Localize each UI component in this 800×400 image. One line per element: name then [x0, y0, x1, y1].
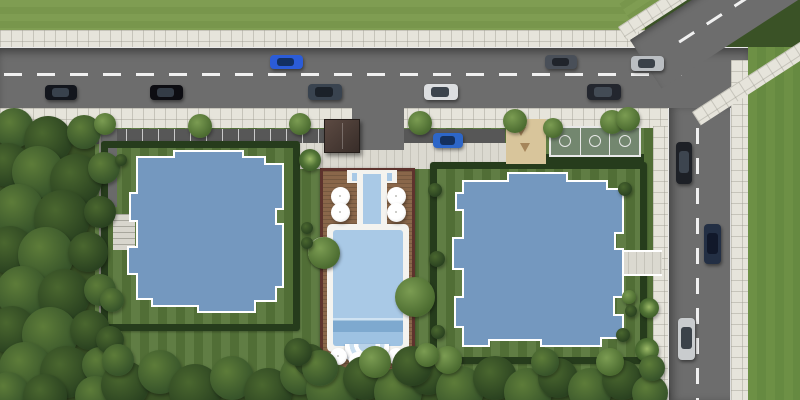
car-windshield — [52, 88, 69, 98]
shrub-70 — [431, 325, 445, 339]
tree-63 — [639, 298, 659, 318]
car-windshield — [431, 87, 449, 97]
car-windshield — [315, 87, 333, 97]
car-horizontal-8 — [433, 133, 463, 148]
car-windshield — [157, 88, 174, 98]
shrub-68 — [428, 183, 442, 197]
tree-57 — [289, 113, 311, 135]
car-windshield — [679, 151, 689, 173]
site-plan-render — [0, 0, 800, 400]
tree-12 — [68, 232, 108, 272]
shrub-71 — [618, 182, 632, 196]
car-horizontal-7 — [631, 56, 664, 71]
shrub-74 — [625, 305, 637, 317]
pool-umbrella-3 — [387, 203, 406, 222]
car-horizontal-0 — [45, 85, 77, 100]
tree-9 — [84, 196, 116, 228]
shrub-69 — [429, 251, 445, 267]
planter-tree-1 — [395, 277, 435, 317]
car-horizontal-4 — [424, 84, 458, 100]
pool-main-water — [333, 230, 403, 346]
car-windshield — [707, 233, 718, 254]
shrub-67 — [301, 237, 313, 249]
shrub-66 — [301, 222, 313, 234]
tree-62 — [616, 107, 640, 131]
car-windshield — [277, 58, 294, 67]
building-left-roof — [128, 151, 283, 312]
pool-umbrella-1 — [331, 203, 350, 222]
car-horizontal-2 — [270, 55, 303, 69]
pool-channel-water — [363, 174, 381, 230]
tree-26 — [100, 288, 124, 312]
car-horizontal-5 — [545, 55, 577, 69]
tree-55 — [94, 113, 116, 135]
car-horizontal-1 — [150, 85, 183, 100]
car-vertical-11 — [678, 318, 695, 360]
car-windshield — [638, 59, 655, 69]
shrub-75 — [115, 154, 127, 166]
building-right-roof — [453, 173, 623, 346]
car-horizontal-3 — [308, 84, 342, 100]
car-windshield — [681, 327, 692, 349]
tree-53 — [299, 149, 321, 171]
tree-52 — [415, 343, 439, 367]
tree-65 — [639, 355, 665, 381]
shrub-72 — [616, 328, 630, 342]
car-windshield — [552, 58, 569, 67]
tree-49 — [596, 348, 624, 376]
tree-54 — [284, 338, 312, 366]
tree-46 — [359, 346, 391, 378]
tree-48 — [531, 348, 559, 376]
car-horizontal-6 — [587, 84, 621, 100]
tree-44 — [102, 344, 134, 376]
tree-58 — [408, 111, 432, 135]
car-windshield — [440, 136, 456, 146]
tree-61 — [543, 118, 563, 138]
car-vertical-9 — [676, 142, 692, 184]
tree-59 — [503, 109, 527, 133]
car-windshield — [594, 87, 612, 97]
tree-56 — [188, 114, 212, 138]
car-vertical-10 — [704, 224, 721, 264]
shrub-73 — [622, 290, 636, 304]
